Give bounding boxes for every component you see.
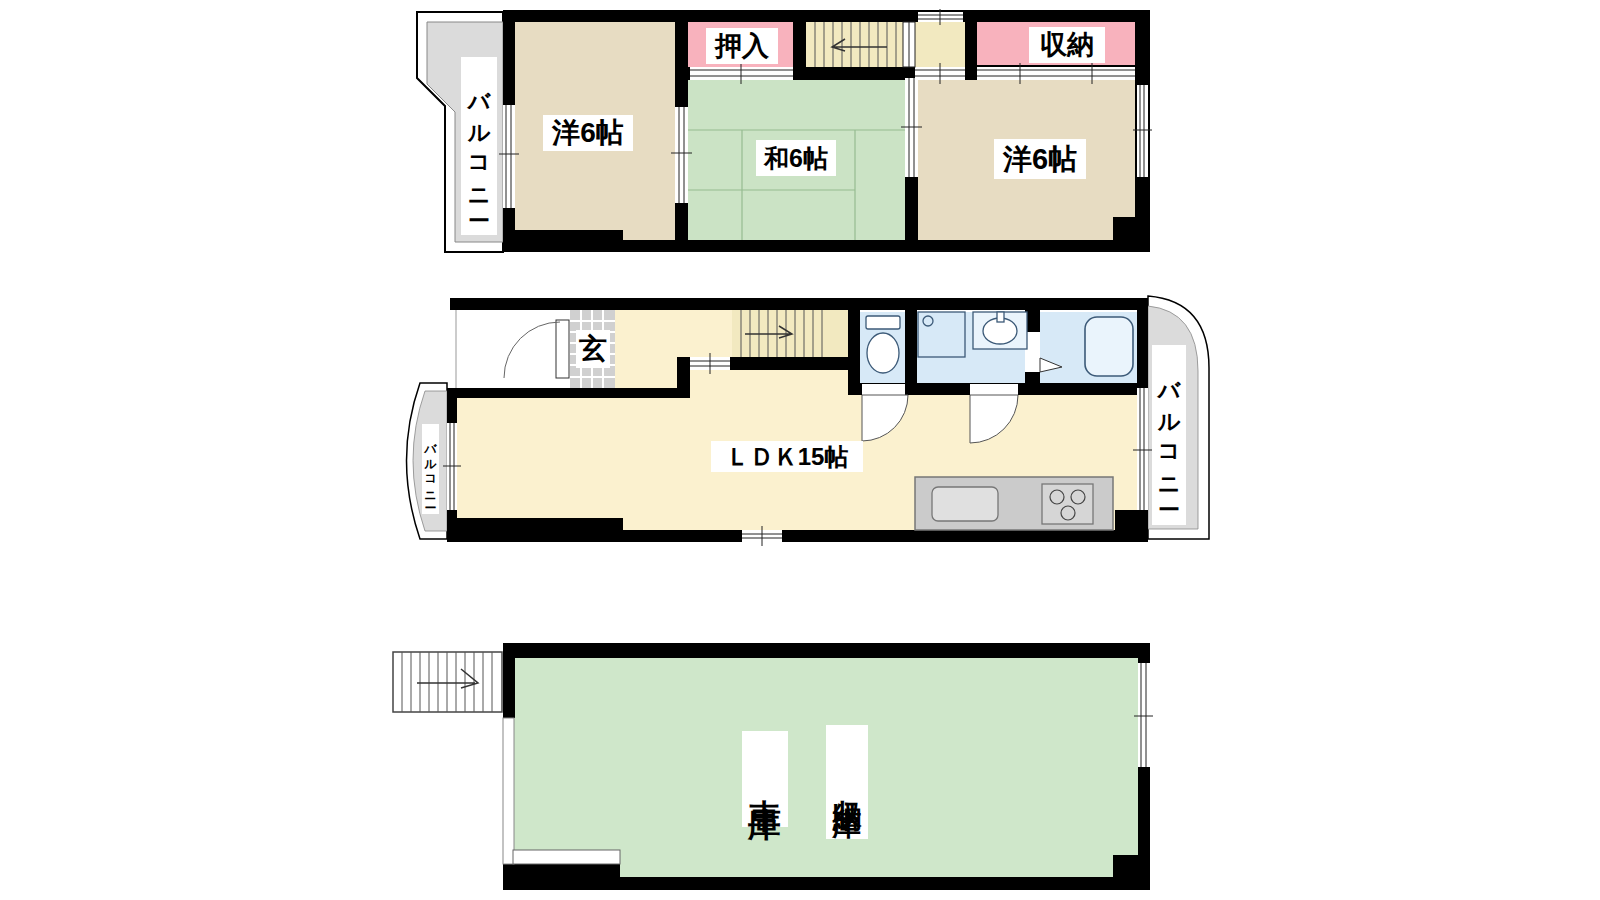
bathtub [1085,317,1133,376]
label-storage-room: 収納庫 [826,725,868,839]
label-genkan: 玄 [576,330,610,368]
toilet-tank [866,316,900,329]
toilet-bowl [867,333,899,373]
label-balcony-2f-left: バルコニー [422,424,439,514]
floor-plan-page: バルコニー 洋6帖 押入 和6帖 収納 洋6帖 玄 ＬＤＫ15帖 バルコニー バ… [0,0,1600,900]
garage-shutter [513,850,620,864]
label-ldk: ＬＤＫ15帖 [711,441,863,472]
label-oshiire: 押入 [706,28,778,64]
vanity-tap [997,312,1004,322]
label-western-room-right: 洋6帖 [994,139,1086,179]
kitchen-stove [1042,484,1093,524]
label-garage: 車庫 [742,731,788,827]
kitchen-sink [932,487,998,521]
label-shunou: 収納 [1029,27,1105,63]
label-western-room-left: 洋6帖 [543,115,633,151]
garage-side-opening [503,718,514,864]
label-balcony-2f-right: バルコニー [1152,345,1186,525]
label-japanese-room: 和6帖 [756,140,836,176]
stair-landing-3f [915,22,965,67]
label-balcony-3f: バルコニー [461,57,497,235]
entrance-door-leaf [556,320,569,378]
floor-2f [407,296,1210,546]
entrance-door-swing [504,322,560,378]
stairs-3f [806,22,905,67]
kitchen-2f [915,477,1113,530]
